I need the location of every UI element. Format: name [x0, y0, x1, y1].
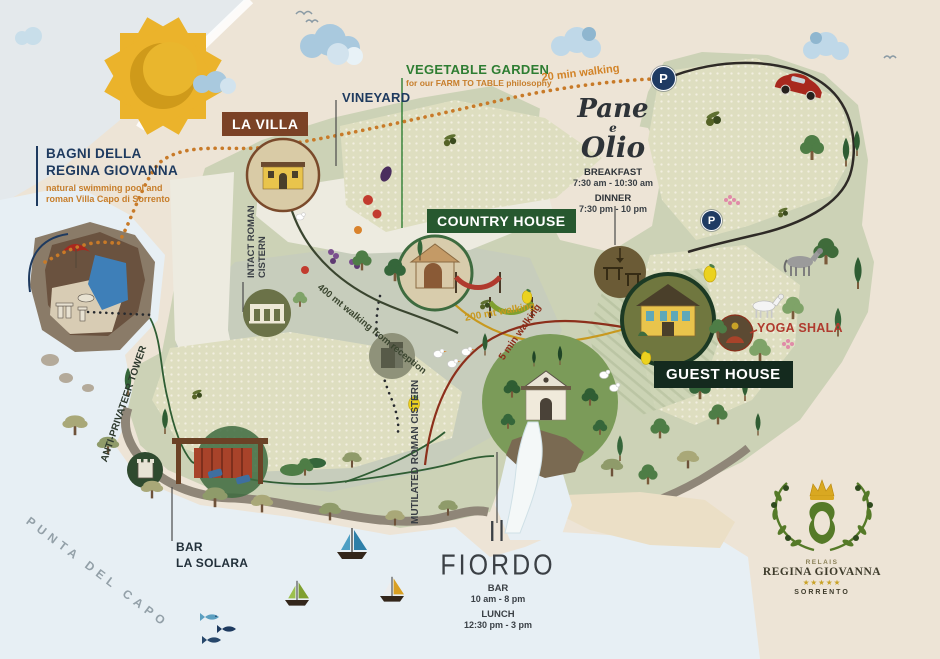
pane-e-olio-name-3: Olio	[538, 134, 688, 162]
brand-logo: RELAIS REGINA GIOVANNA ★★★★★ SORRENTO	[760, 478, 884, 596]
guest-house-icon	[622, 274, 714, 366]
logo-wreath-icon	[760, 478, 884, 554]
intact-cistern-icon	[243, 289, 291, 337]
vineyard-label: VINEYARD	[342, 90, 410, 105]
pane-e-olio-group: Pane e Olio BREAKFAST 7:30 am - 10:30 am…	[538, 96, 688, 214]
mutilated-cistern-label: MUTILATED ROMAN CISTERN	[410, 374, 421, 524]
pane-e-olio-name-1: Pane	[538, 96, 688, 122]
dinner-hours: 7:30 pm - 10 pm	[538, 204, 688, 214]
bagni-title: BAGNI DELLA REGINA GIOVANNA	[46, 146, 256, 180]
estate-map: BAGNI DELLA REGINA GIOVANNA natural swim…	[0, 0, 940, 659]
country-house-icon	[398, 236, 472, 310]
fiordo-bar-label: BAR	[428, 583, 568, 594]
guest-house-badge: GUEST HOUSE	[654, 361, 793, 388]
logo-stars: ★★★★★	[760, 578, 884, 587]
intact-cistern-label: INTACT ROMAN CISTERN	[246, 166, 268, 278]
yoga-shala-label: YOGA SHALA	[757, 321, 843, 335]
vegetable-garden-subtitle: for our FARM TO TABLE philosophy	[406, 78, 552, 88]
bagni-label-group: BAGNI DELLA REGINA GIOVANNA natural swim…	[36, 146, 256, 206]
logo-city: SORRENTO	[760, 589, 884, 596]
breakfast-label: BREAKFAST	[538, 167, 688, 178]
breakfast-hours: 7:30 am - 10:30 am	[538, 178, 688, 188]
bar-la-solara-label: BAR LA SOLARA	[176, 540, 248, 571]
bagni-subtitle: natural swimming pool and roman Villa Ca…	[46, 183, 256, 206]
vegetable-garden-label: VEGETABLE GARDEN	[406, 62, 552, 77]
il-fiordo-name: Il FIORDO	[428, 516, 568, 583]
parking-icon-east: P	[701, 210, 722, 231]
parking-icon-north: P	[651, 66, 676, 91]
vegetable-garden-label-group: VEGETABLE GARDEN for our FARM TO TABLE p…	[406, 62, 552, 88]
il-fiordo-group: Il FIORDO BAR 10 am - 8 pm LUNCH 12:30 p…	[428, 520, 568, 630]
logo-relais: RELAIS	[760, 559, 884, 566]
logo-name: REGINA GIOVANNA	[760, 566, 884, 578]
la-villa-badge: LA VILLA	[222, 112, 308, 136]
fiordo-bar-hours: 10 am - 8 pm	[428, 594, 568, 604]
dinner-label: DINNER	[538, 193, 688, 204]
fiordo-lunch-hours: 12:30 pm - 3 pm	[428, 620, 568, 630]
fiordo-lunch-label: LUNCH	[428, 609, 568, 620]
